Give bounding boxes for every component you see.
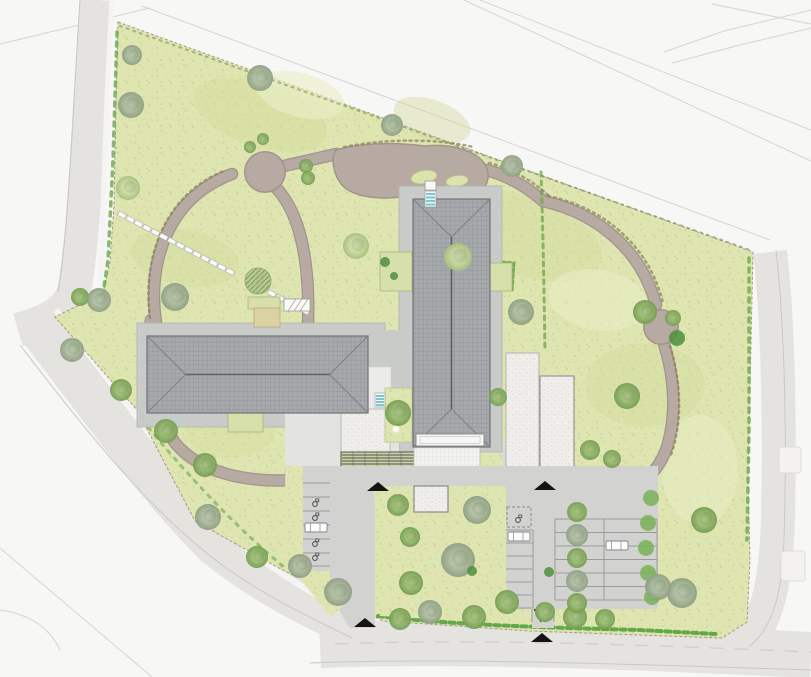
tree: [301, 171, 315, 185]
terrace-south: [228, 411, 263, 432]
tree: [508, 299, 534, 325]
tree: [380, 257, 390, 267]
tree: [567, 502, 587, 522]
tree: [544, 567, 554, 577]
west-entrance-steps: [375, 393, 385, 407]
tree: [566, 570, 588, 592]
terrace-sand: [254, 308, 280, 327]
path-plaza-circle: [246, 153, 285, 192]
tree: [244, 141, 256, 153]
tree: [195, 504, 221, 530]
tree: [257, 133, 269, 145]
tree: [462, 605, 486, 629]
tree: [71, 288, 89, 306]
tree: [567, 548, 587, 568]
hedgerow-shrub: [640, 515, 656, 531]
tree: [400, 527, 420, 547]
tree: [110, 379, 132, 401]
tree: [324, 578, 352, 606]
tree: [645, 574, 671, 600]
tree: [299, 159, 313, 173]
terrace-north: [248, 297, 280, 309]
tree: [247, 65, 273, 91]
tree: [116, 176, 140, 200]
tree: [60, 338, 84, 362]
south-canopy: [416, 434, 484, 446]
tree: [154, 419, 178, 443]
tree: [87, 288, 111, 312]
terrace-east: [488, 263, 512, 291]
tree: [667, 578, 697, 608]
west-building-roof: [147, 336, 368, 413]
tree: [580, 440, 600, 460]
main-building-roof: [413, 199, 490, 447]
tree: [444, 243, 472, 271]
tree: [161, 283, 189, 311]
tree: [246, 546, 268, 568]
tree: [389, 608, 411, 630]
tree: [399, 571, 423, 595]
tree: [614, 383, 640, 409]
tree: [603, 450, 621, 468]
parked-car-symbol: [606, 541, 628, 550]
tree: [288, 554, 312, 578]
parked-car-symbol: [305, 523, 327, 532]
tree: [387, 494, 409, 516]
tree: [633, 300, 657, 324]
site-plan-drawing: [0, 0, 811, 677]
hedge-right-boundary: [747, 258, 749, 540]
tree: [385, 400, 411, 426]
tree: [122, 45, 142, 65]
tree: [390, 272, 398, 280]
hedgerow-shrub: [643, 490, 659, 506]
tree: [193, 453, 217, 477]
gravel-court-a: [506, 353, 539, 478]
parked-car-symbol: [508, 532, 530, 541]
tree: [567, 593, 587, 613]
tree: [566, 524, 588, 546]
tree: [118, 92, 144, 118]
tree: [501, 155, 523, 177]
lawn-mottle: [585, 343, 705, 427]
tree: [495, 590, 519, 614]
north-entrance-steps: [425, 181, 436, 207]
tree: [463, 496, 491, 524]
tree: [418, 600, 442, 624]
tree: [691, 507, 717, 533]
hedgerow-shrub: [638, 540, 654, 556]
tree: [535, 602, 555, 622]
tree: [489, 388, 507, 406]
driveway-apron: [781, 551, 805, 581]
arbor-bench: [284, 299, 310, 311]
tree: [665, 310, 681, 326]
tree: [467, 566, 477, 576]
tree: [669, 330, 685, 346]
island-gravel-court: [414, 486, 448, 512]
planting-circle-hatched: [245, 268, 271, 294]
tree: [595, 609, 615, 629]
driveway-apron: [779, 447, 801, 473]
tree: [381, 114, 403, 136]
tree: [343, 233, 369, 259]
courtyard-tree-underplant: [393, 426, 400, 433]
